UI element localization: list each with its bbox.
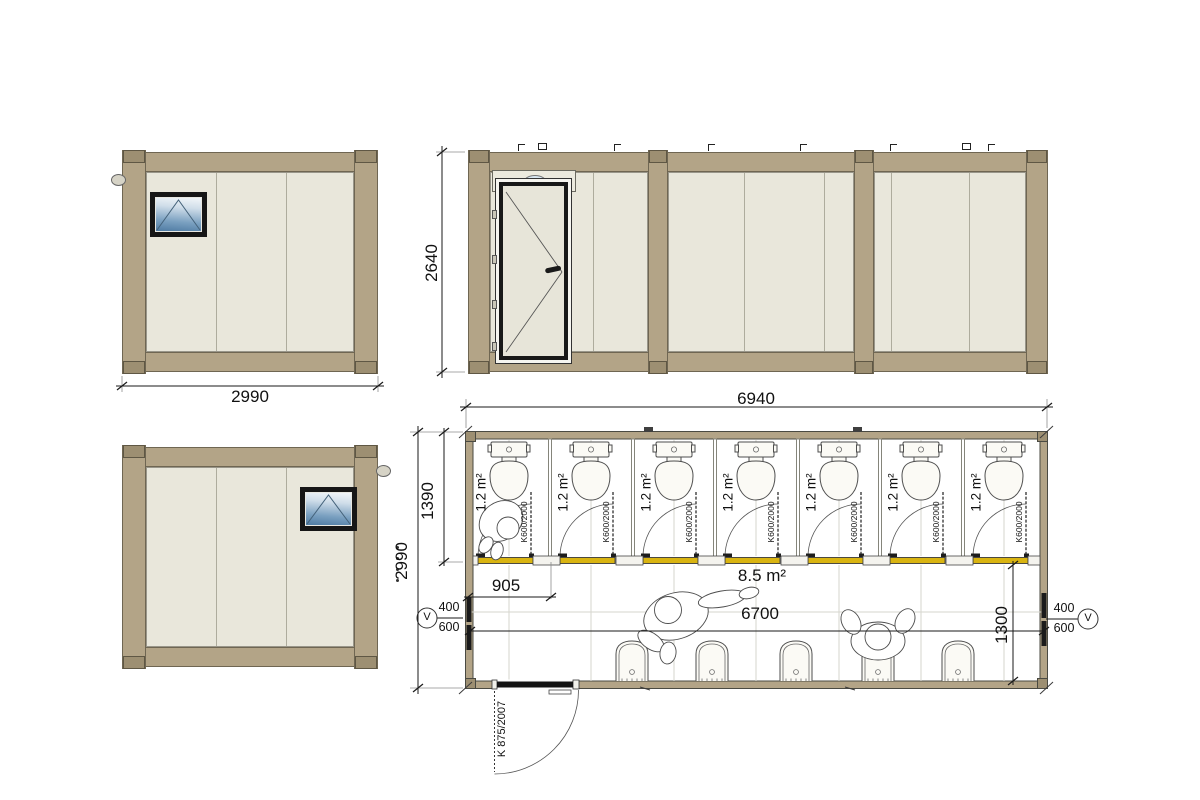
dim-label-cubicle-depth: 1390 [418,471,438,531]
vent-right-symbol: V [1081,612,1095,624]
panel-joint [216,173,217,351]
cubicle-area-label: 1.2 m² [804,461,819,525]
hinge-icon [492,210,497,219]
window-glass [305,492,352,526]
corner-fitting [649,150,667,163]
elevation-side-top-left [122,150,378,374]
person-sitting [471,492,530,561]
roof-hook-icon [890,144,897,151]
wall-panels-bay3 [874,172,1026,352]
corner-post [122,445,146,669]
cubicle-area-label: 1.2 m² [969,461,984,525]
middle-post [648,150,668,374]
cubicle-door-code-label: K600/2000 [519,487,529,557]
corner-post [468,150,490,374]
window-glass [155,197,202,232]
panel-joint [593,173,594,351]
vent-left-top-label: 400 [435,600,463,614]
vent-pipe-icon [376,465,391,477]
cubicle-door-code-label: K600/2000 [766,487,776,557]
panel-joint [286,173,287,351]
dim-label-room-depth: 1300 [992,593,1012,657]
corner-fitting [355,361,377,374]
fixing-dot [396,568,399,571]
top-rail [144,152,356,172]
hinge-icon [492,255,497,264]
panel-joint [286,468,287,646]
cubicle-front-wall [473,556,1040,565]
entrance-door-code-label: K 875/2007 [496,689,508,769]
hinge-icon [492,300,497,309]
dim-label-room-length: 6700 [715,604,805,624]
roof-vent-mark [644,427,653,432]
corner-fitting [855,150,873,163]
dim-label-side-width: 2990 [210,387,290,407]
wash-basins [616,641,974,681]
cubicle-door-code-label: K600/2000 [931,487,941,557]
door-leaf [499,182,568,360]
cubicle-area-label: 1.2 m² [556,461,571,525]
cubicle-door-code-label: K600/2000 [601,487,611,557]
corner-fitting [855,361,873,374]
top-rail [488,152,1028,172]
corner-marks [459,426,1053,694]
corner-post [354,445,378,669]
room-area-label: 8.5 m² [712,566,812,586]
plan-outer-walls [466,432,1048,689]
hinge-icon [492,342,497,351]
middle-post [854,150,874,374]
cubicle-partitions [549,439,965,557]
fixing-dot [396,579,399,582]
corner-fitting [469,361,489,374]
corner-fitting [649,361,667,374]
corner-fitting [1027,150,1047,163]
cubicle-area-label: 1.2 m² [474,461,489,525]
plan-labels: 2990 2640 6940 2990 1390 905 8.5 m² 6700… [0,0,1200,800]
roof-hook-icon [708,144,715,151]
cubicle-door-code-label: K600/2000 [684,487,694,557]
entrance-door-elevation [495,178,572,364]
roof-hook-icon [800,144,807,151]
vent-pipe-icon [111,174,126,186]
corner-fitting [355,445,377,458]
roof-hook-icon [614,144,621,151]
dim-label-plan-width: 6940 [716,389,796,409]
panel-joint [891,173,892,351]
entrance-door-plan [492,680,579,775]
tilt-window-icon [150,192,207,237]
toilet-cubicles [476,440,1029,564]
elevation-front [468,150,1048,374]
fixing-dot [396,557,399,560]
lifting-lug-icon [538,143,547,150]
plan-windows [467,593,1047,650]
corner-fitting [355,656,377,669]
floor-plan [0,0,1200,800]
cubicle-area-label: 1.2 m² [639,461,654,525]
bottom-rail [144,352,356,372]
vent-symbols [417,608,1098,629]
vent-right-top-label: 400 [1050,601,1078,615]
panel-joint [824,173,825,351]
roof-hook-icon [988,144,995,151]
drawing-canvas: 2990 2640 6940 2990 1390 905 8.5 m² 6700… [0,0,1200,800]
cubicle-area-label: 1.2 m² [721,461,736,525]
panel-joint [744,173,745,351]
person-at-basin [837,605,919,660]
roof-vent-mark [853,427,862,432]
elevation-side-bottom-left [122,445,378,669]
dim-label-height: 2640 [422,233,442,293]
corner-fitting [1027,361,1047,374]
cubicle-door-code-label: K600/2000 [849,487,859,557]
corner-fitting [123,361,145,374]
bottom-rail [144,647,356,667]
wall-panels-bay2 [668,172,854,352]
dim-label-first-cubicle: 905 [478,576,534,596]
corner-fitting [469,150,489,163]
person-standing [634,584,760,665]
panel-joint [969,173,970,351]
corner-fitting [123,656,145,669]
corner-post [354,150,378,374]
corner-fitting [355,150,377,163]
cubicle-area-label: 1.2 m² [886,461,901,525]
dim-label-plan-depth: 2990 [392,531,412,591]
cubicle-door-code-label: K600/2000 [1014,487,1024,557]
corner-fitting [123,445,145,458]
corner-post [122,150,146,374]
fixing-dot [396,546,399,549]
lifting-lug-icon [962,143,971,150]
top-rail [144,447,356,467]
tilt-window-icon [300,487,357,531]
vent-left-symbol: V [420,611,434,623]
vent-left-bottom-label: 600 [435,620,463,634]
vent-right-bottom-label: 600 [1050,621,1078,635]
roof-hook-icon [518,144,525,151]
panel-joint [216,468,217,646]
corner-post [1026,150,1048,374]
corner-fitting [123,150,145,163]
floor-joints [470,565,1042,681]
